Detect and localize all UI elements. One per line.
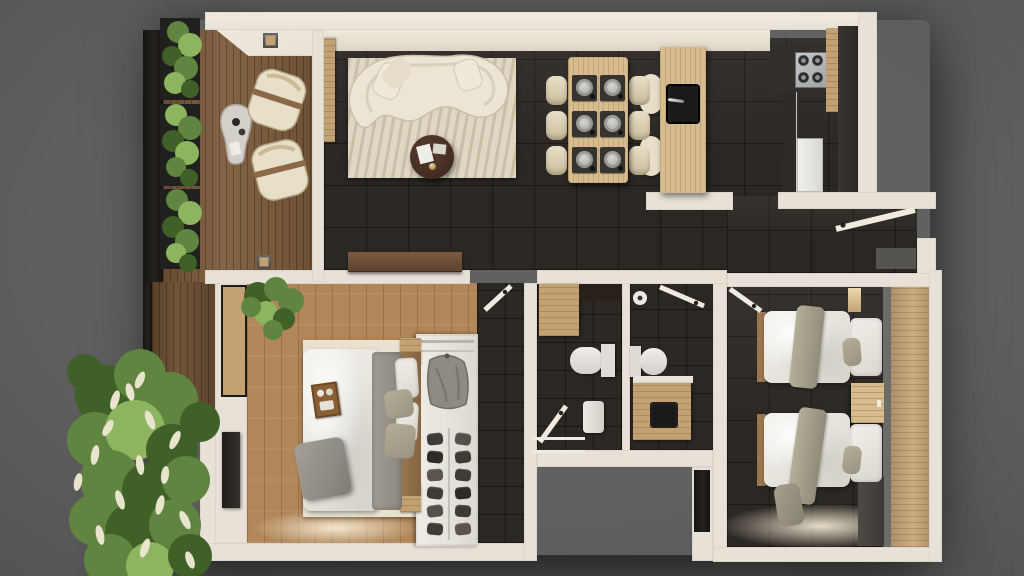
bedroom2-door <box>730 289 761 311</box>
exterior-plant-cluster <box>67 349 220 576</box>
entry-door <box>836 210 915 229</box>
bathroom2-door <box>660 287 704 306</box>
lounge-chair <box>243 65 312 135</box>
stone-coffee-table <box>221 105 251 164</box>
floor-plan-render <box>0 0 1024 576</box>
bathroom1-door <box>540 406 566 442</box>
bedroom1-door <box>485 286 511 310</box>
planter-plants <box>162 21 202 272</box>
hanging-jacket <box>428 354 468 409</box>
organic-overlay <box>0 0 1024 576</box>
lounge-chair <box>247 136 313 203</box>
curved-sofa <box>349 54 507 127</box>
bedroom-plant <box>241 277 304 340</box>
